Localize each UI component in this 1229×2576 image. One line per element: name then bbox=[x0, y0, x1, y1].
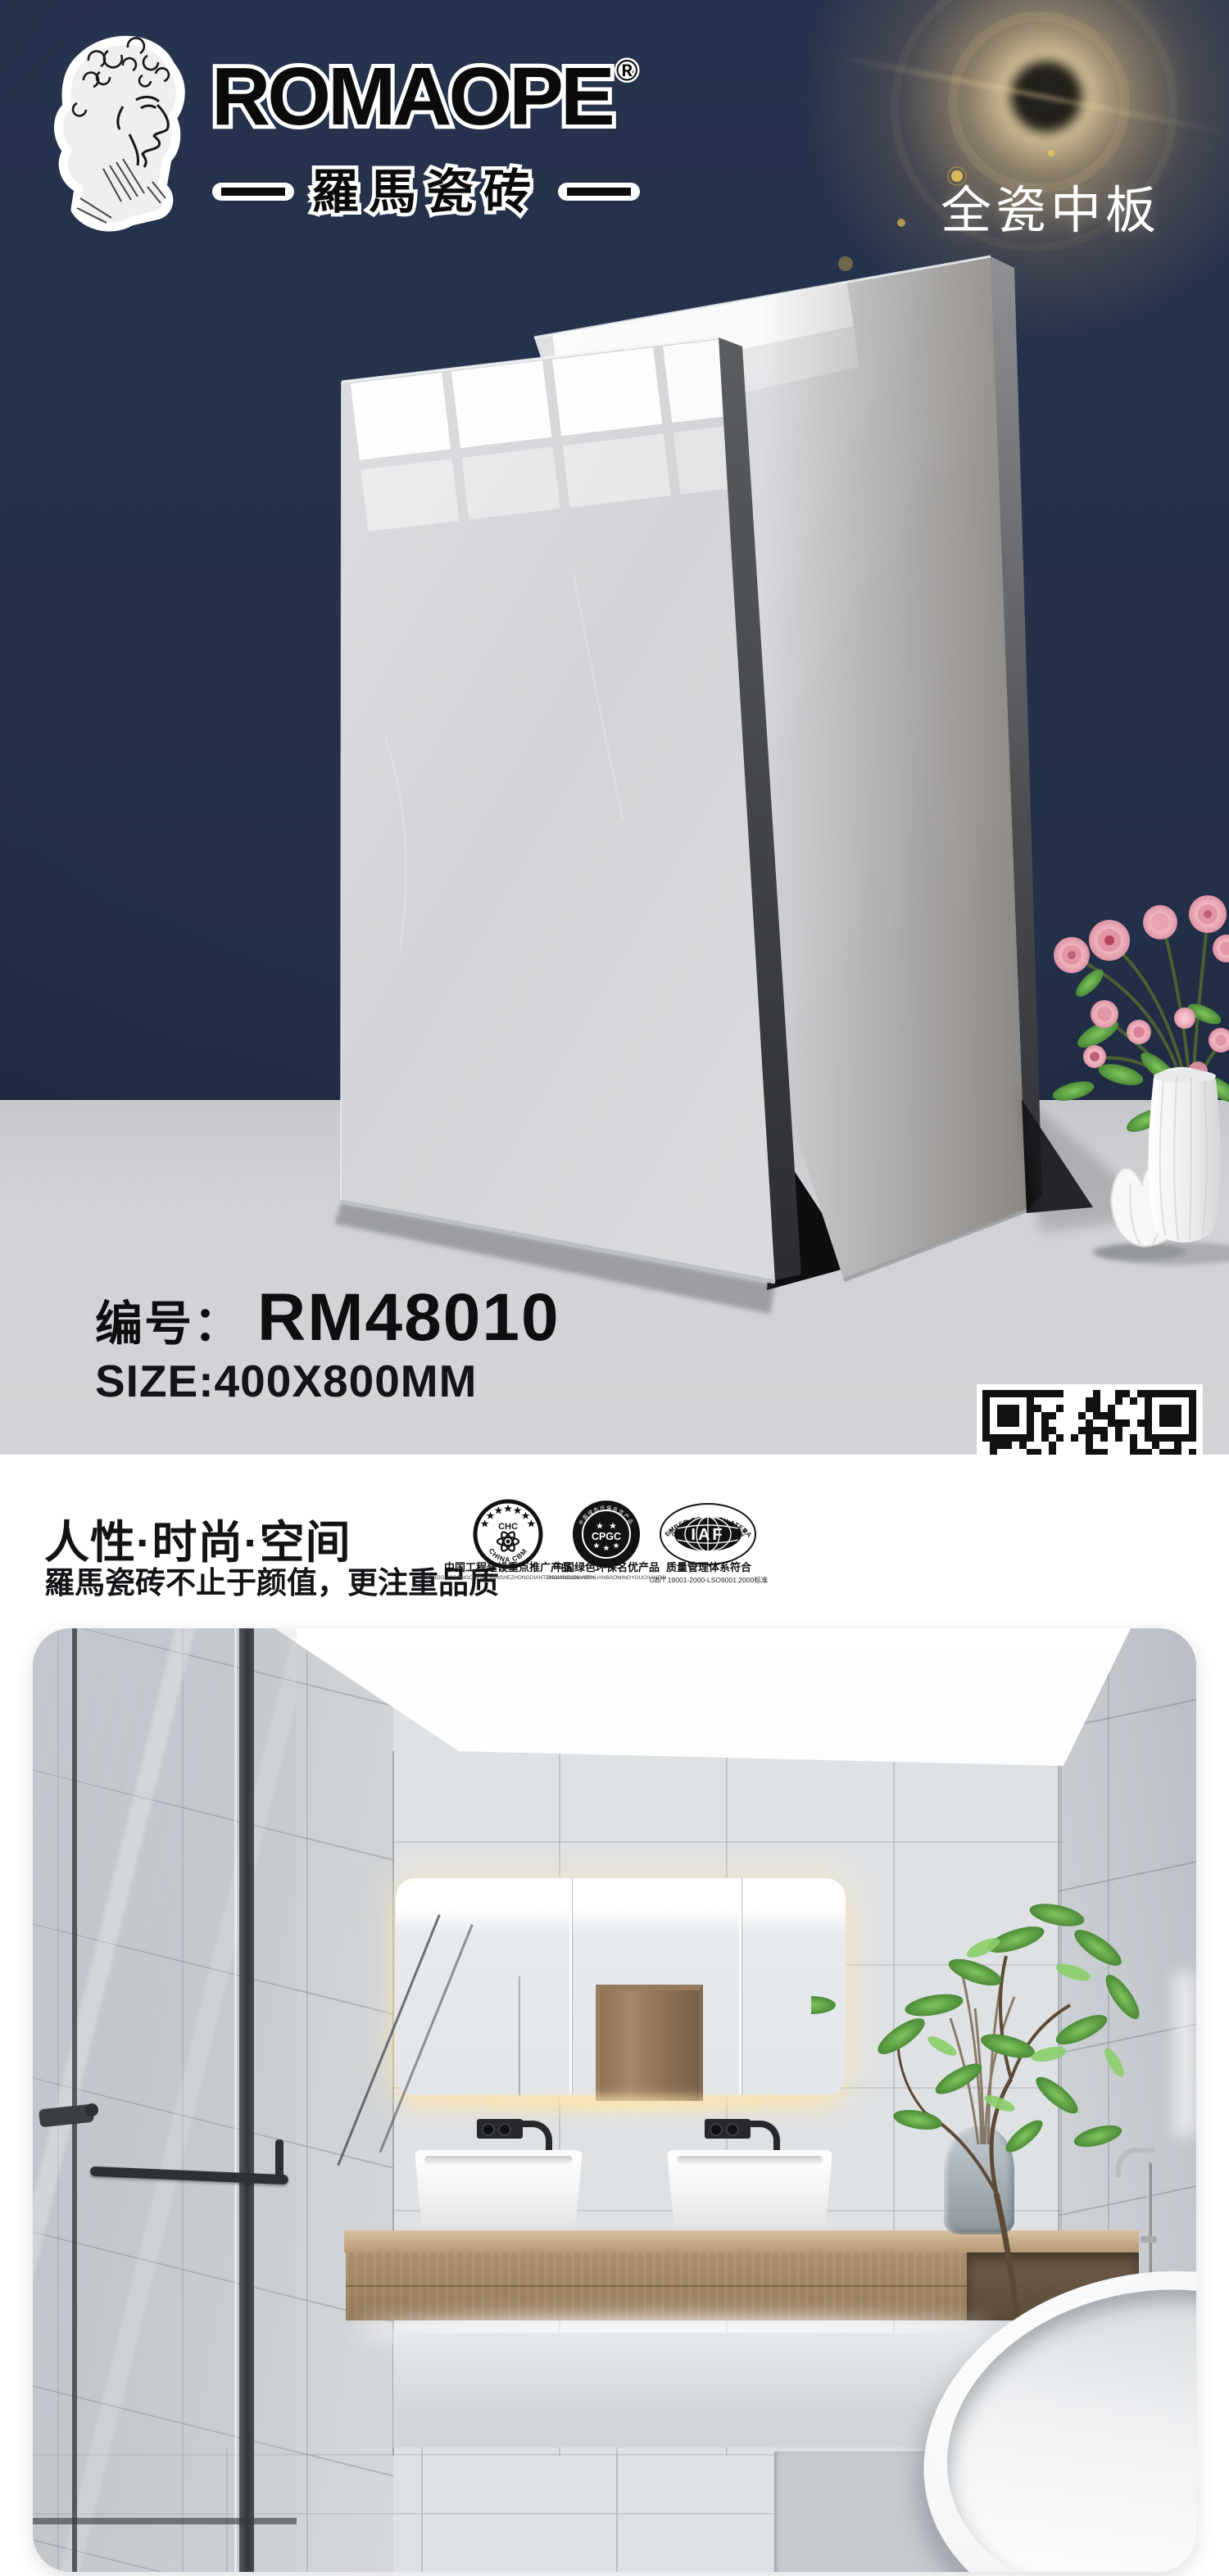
poster: ROMAOPE ® 羅馬瓷砖 全瓷中板 编号： RM48010 SIZE:400… bbox=[0, 0, 1229, 2576]
faucet-handle bbox=[726, 2123, 739, 2136]
product-code-row: 编号： RM48010 bbox=[95, 1279, 560, 1356]
david-head-logo-icon bbox=[31, 26, 205, 233]
brand-name-cn: 羅馬瓷砖 bbox=[311, 165, 541, 219]
faucet-handle bbox=[710, 2123, 723, 2136]
badge-iaf: MEMBER OF MULTILATERAL RECOGNITION ARRAN… bbox=[657, 1502, 759, 1566]
shower-frame-bottom bbox=[33, 2518, 297, 2524]
slogan-section: 人性·时尚·空间 羅馬瓷砖不止于颜值，更注重品质 CHC bbox=[0, 1455, 1229, 1628]
vessel-sink-right bbox=[667, 2150, 832, 2240]
faucet-handle bbox=[482, 2123, 495, 2136]
shower-frame-bar bbox=[239, 1628, 254, 2572]
tub-filler-handle bbox=[1141, 2236, 1157, 2243]
badge-caption-iaf: 质量管理体系符合 GB/T 19001-2000-LSO9001:2000标准 bbox=[631, 1561, 787, 1585]
mirror-seam bbox=[569, 1878, 572, 2095]
product-code-value: RM48010 bbox=[257, 1279, 560, 1356]
brand-logo: ROMAOPE ® 羅馬瓷砖 bbox=[31, 23, 711, 236]
brand-name-en: ROMAOPE bbox=[211, 51, 612, 143]
series-label: 全瓷中板 bbox=[941, 169, 1203, 242]
bathroom-scene-photo bbox=[33, 1628, 1196, 2572]
product-code-label: 编号： bbox=[95, 1285, 243, 1354]
white-vase bbox=[1149, 1067, 1221, 1243]
vessel-sink-left bbox=[415, 2150, 583, 2240]
plant-leaves bbox=[811, 1899, 1145, 2157]
chc-text: CHC bbox=[498, 1522, 518, 1532]
mirror-backlight-glow bbox=[397, 2092, 846, 2113]
iaf-text: IAF bbox=[691, 1526, 724, 1544]
mirror-ceiling-reflection bbox=[396, 1878, 846, 1932]
towel-bar-bracket bbox=[275, 2139, 283, 2177]
vanity-mirror bbox=[396, 1878, 846, 2095]
cpgc-text: CPGC bbox=[592, 1531, 621, 1542]
glass-edge-highlight bbox=[234, 1628, 237, 2572]
mirror-seam bbox=[739, 1878, 741, 2095]
mirror-door-reflection bbox=[596, 1985, 703, 2101]
mirror-reflection-line bbox=[519, 1976, 520, 2095]
tile-front bbox=[334, 337, 801, 1314]
faucet-handle bbox=[498, 2123, 511, 2136]
registered-mark: ® bbox=[616, 53, 638, 87]
product-size: SIZE:400X800MM bbox=[95, 1355, 477, 1407]
brand-wordmark: ROMAOPE ® 羅馬瓷砖 bbox=[210, 38, 701, 234]
shower-mixer-knob bbox=[85, 2103, 98, 2116]
shower-frame-thin bbox=[72, 1628, 77, 2572]
badge-cpgc: 中国绿色环保名优产品 CPGC bbox=[571, 1499, 642, 1569]
badge-chc: CHC CHINA CBM bbox=[473, 1499, 543, 1569]
